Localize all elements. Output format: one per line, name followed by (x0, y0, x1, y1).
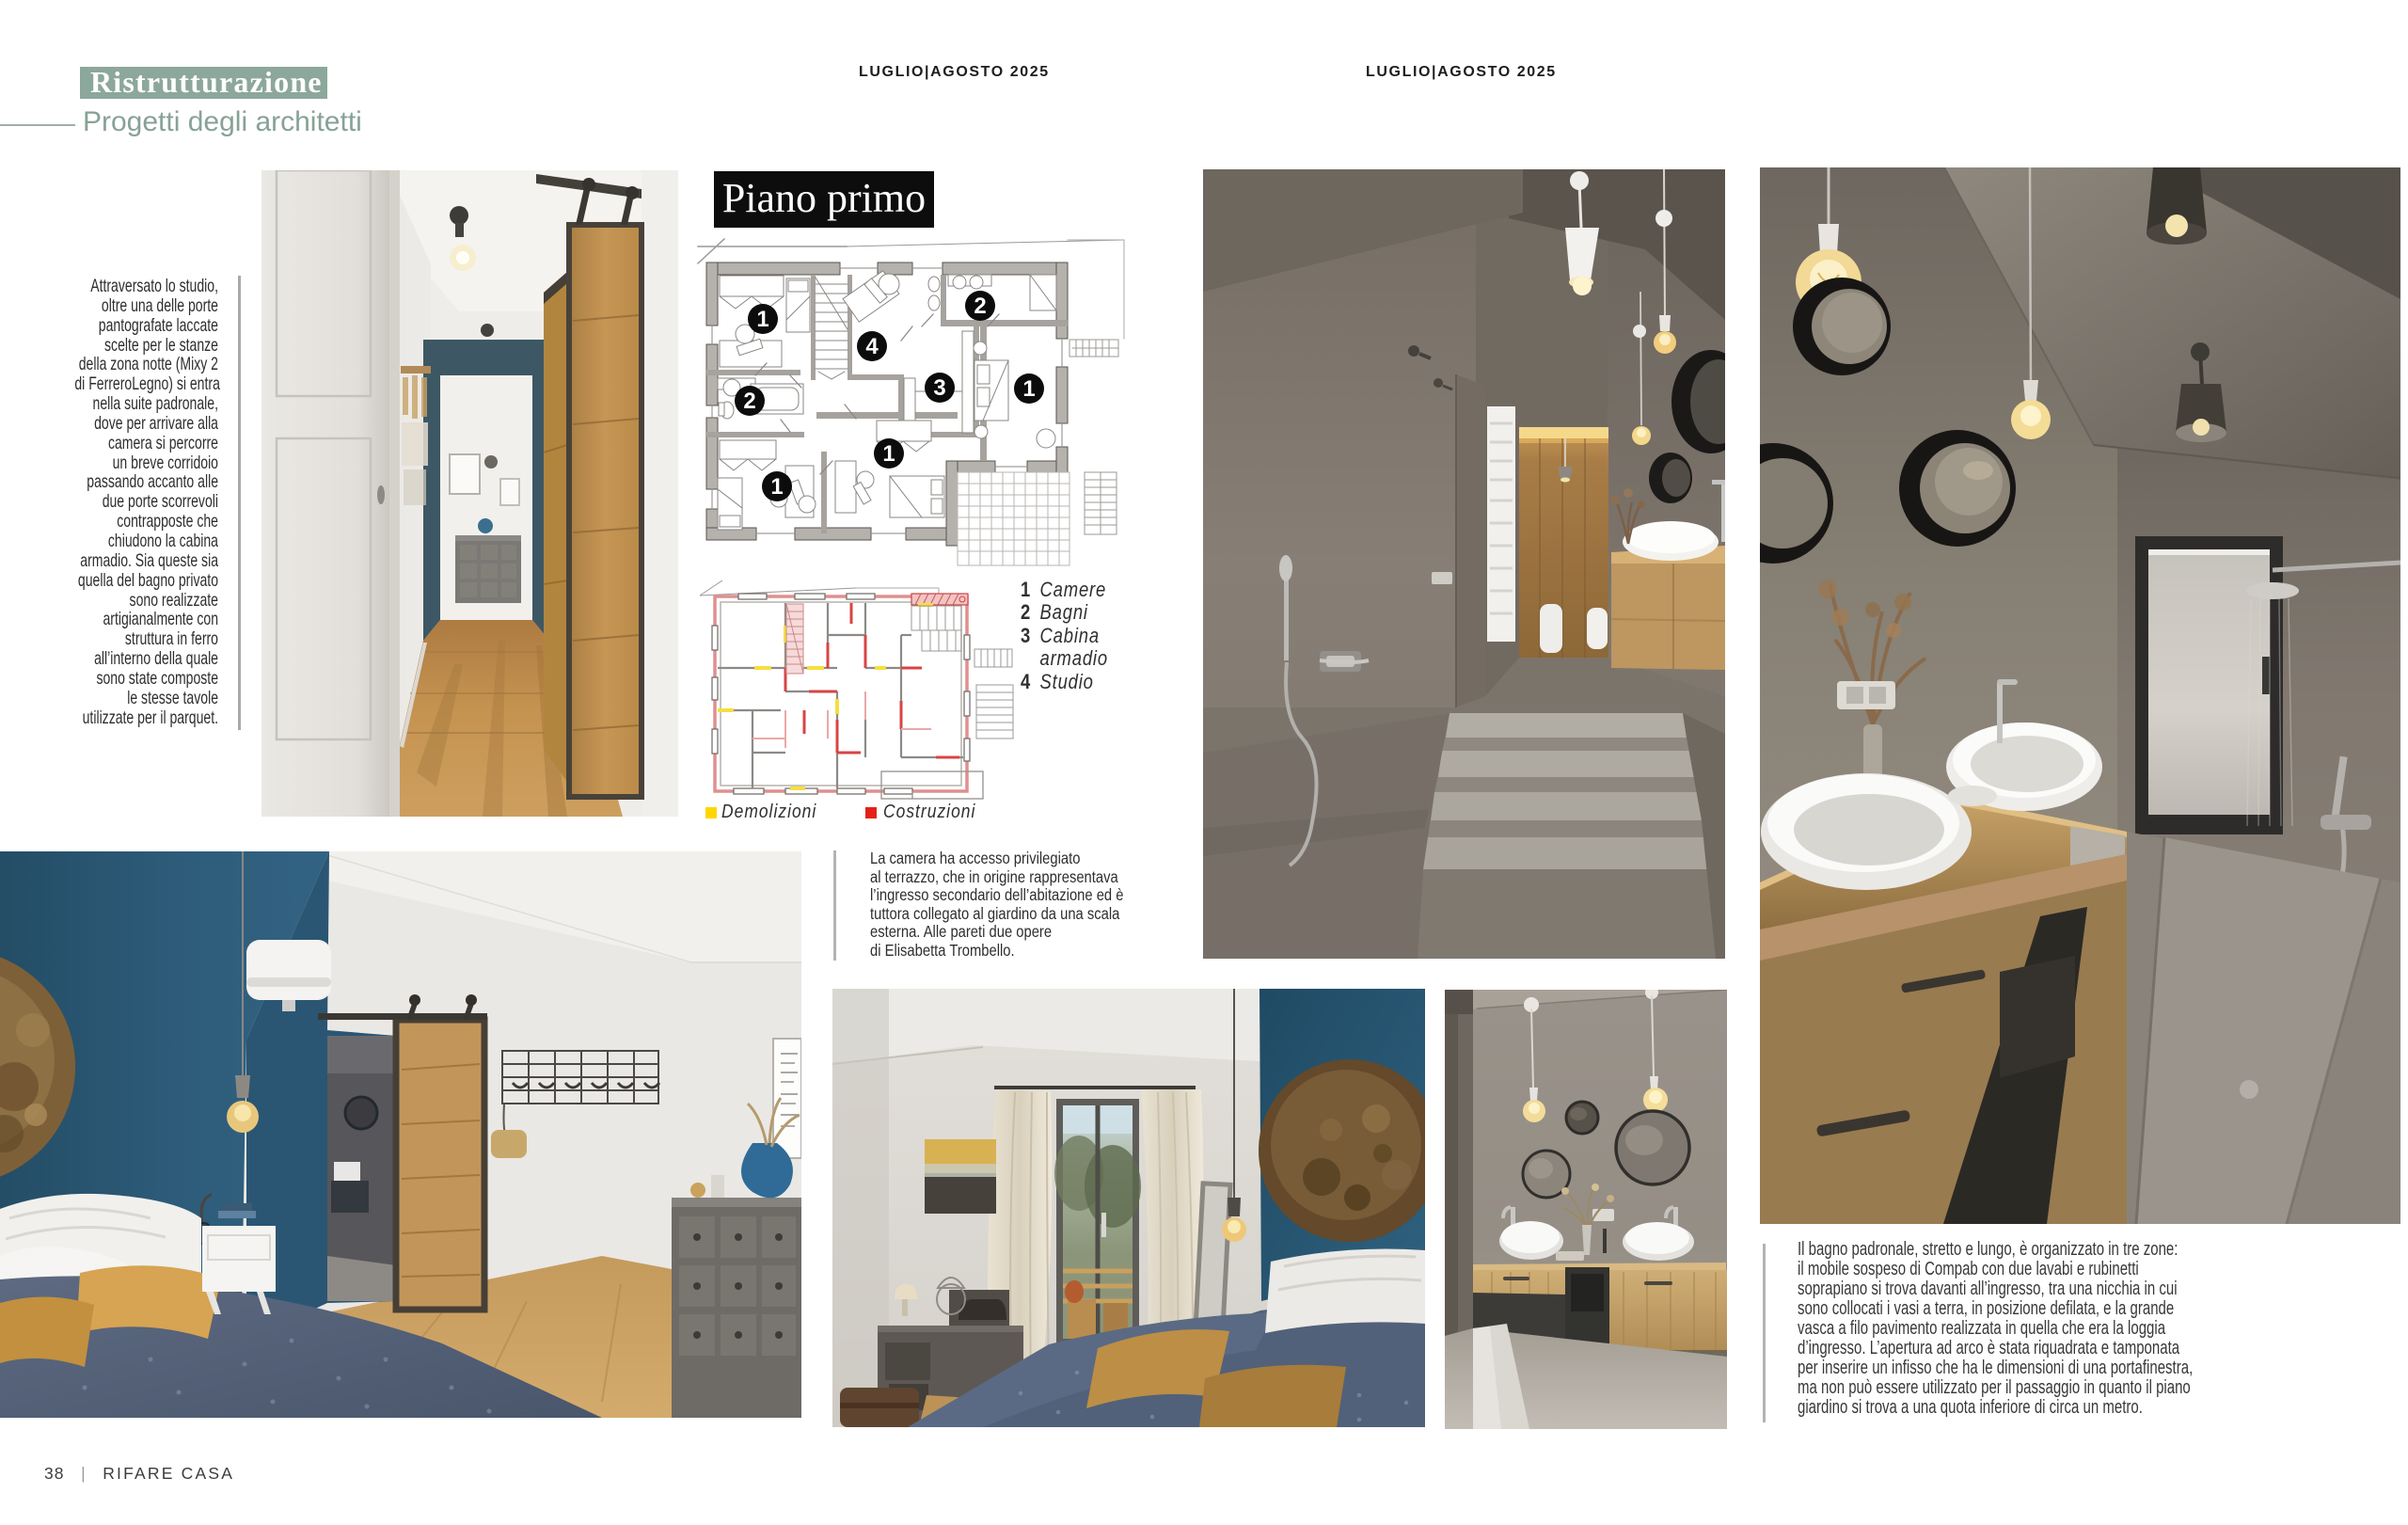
svg-text:1: 1 (756, 307, 768, 332)
svg-text:2: 2 (974, 294, 986, 319)
svg-text:4: 4 (865, 334, 879, 359)
svg-text:3: 3 (933, 375, 945, 401)
svg-text:1: 1 (770, 474, 783, 500)
svg-text:1: 1 (882, 441, 895, 467)
svg-text:2: 2 (743, 389, 755, 414)
svg-text:1: 1 (1022, 376, 1035, 402)
